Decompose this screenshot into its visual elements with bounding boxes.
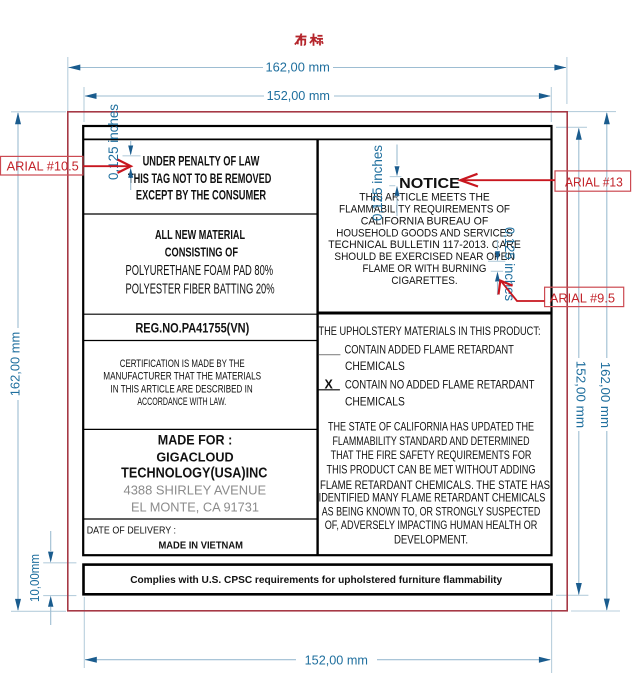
- svg-text:152,00 mm: 152,00 mm: [573, 361, 588, 428]
- svg-text:THE UPHOLSTERY MATERIALS IN TH: THE UPHOLSTERY MATERIALS IN THIS PRODUCT…: [319, 324, 541, 338]
- svg-text:DEVELOPMENT.: DEVELOPMENT.: [394, 532, 468, 546]
- svg-text:CERTIFICATION IS MADE BY THE: CERTIFICATION IS MADE BY THE: [120, 358, 245, 370]
- svg-text:0,125 inches: 0,125 inches: [369, 145, 385, 221]
- svg-text:ARIAL #13: ARIAL #13: [565, 174, 623, 189]
- svg-text:FLAMMABILITY REQUIREMENTS OF: FLAMMABILITY REQUIREMENTS OF: [339, 203, 510, 215]
- svg-text:EL MONTE, CA 91731: EL MONTE, CA 91731: [131, 499, 259, 514]
- svg-text:CONTAIN NO ADDED FLAME RETARDA: CONTAIN NO ADDED FLAME RETARDANT: [345, 378, 535, 392]
- svg-text:ARIAL #10.5: ARIAL #10.5: [7, 159, 79, 174]
- svg-text:ACCORDANCE WITH LAW.: ACCORDANCE WITH LAW.: [137, 396, 226, 408]
- svg-text:Complies with U.S. CPSC requir: Complies with U.S. CPSC requirements for…: [130, 574, 502, 586]
- svg-text:152,00 mm: 152,00 mm: [305, 653, 368, 668]
- svg-text:THIS TAG NOT TO BE REMOVED: THIS TAG NOT TO BE REMOVED: [128, 170, 271, 186]
- svg-text:162,00 mm: 162,00 mm: [265, 60, 330, 75]
- svg-text:ALL NEW MATERIAL: ALL NEW MATERIAL: [155, 228, 245, 242]
- svg-text:EXCEPT BY THE CONSUMER: EXCEPT BY THE CONSUMER: [136, 186, 266, 202]
- svg-text:MADE FOR :: MADE FOR :: [158, 432, 233, 448]
- svg-text:4388 SHIRLEY AVENUE: 4388 SHIRLEY AVENUE: [124, 482, 267, 497]
- svg-text:IDENTIFIED MANY FLAME RETARDAN: IDENTIFIED MANY FLAME RETARDANT CHEMICAL…: [319, 490, 546, 504]
- svg-text:POLYESTER FIBER BATTING 20%: POLYESTER FIBER BATTING 20%: [126, 282, 275, 298]
- svg-text:FLAMMABILITY STANDARD AND DETE: FLAMMABILITY STANDARD AND DETERMINED: [333, 434, 530, 448]
- svg-text:0,125 inches: 0,125 inches: [105, 104, 121, 180]
- svg-text:CHEMICALS: CHEMICALS: [345, 359, 405, 373]
- svg-text:0,125 inches: 0,125 inches: [502, 227, 518, 301]
- svg-text:MADE IN VIETNAM: MADE IN VIETNAM: [158, 539, 243, 551]
- svg-text:THE STATE OF CALIFORNIA HAS UP: THE STATE OF CALIFORNIA HAS UPDATED THE: [328, 420, 534, 434]
- svg-text:FLAME OR WITH BURNING: FLAME OR WITH BURNING: [363, 263, 487, 275]
- svg-text:162,00 mm: 162,00 mm: [598, 362, 613, 428]
- svg-text:CONSISTING OF: CONSISTING OF: [165, 245, 238, 259]
- svg-text:POLYURETHANE FOAM PAD 80%: POLYURETHANE FOAM PAD 80%: [126, 263, 274, 279]
- svg-text:SHOULD BE EXERCISED NEAR OPEN: SHOULD BE EXERCISED NEAR OPEN: [334, 251, 514, 263]
- svg-text:REG.NO.PA41755(VN): REG.NO.PA41755(VN): [135, 321, 249, 336]
- svg-text:IN THIS ARTICLE ARE DESCRIBED: IN THIS ARTICLE ARE DESCRIBED IN: [111, 383, 253, 395]
- svg-text:ARIAL #9.5: ARIAL #9.5: [550, 290, 615, 305]
- svg-text:MANUFACTURER THAT THE MATERIAL: MANUFACTURER THAT THE MATERIALS: [103, 371, 261, 383]
- svg-text:GIGACLOUD: GIGACLOUD: [156, 450, 233, 465]
- svg-text:NOTICE: NOTICE: [399, 175, 460, 192]
- svg-text:152,00 mm: 152,00 mm: [267, 88, 330, 103]
- svg-text:DATE OF DELIVERY :: DATE OF DELIVERY :: [87, 525, 176, 537]
- svg-text:CONTAIN ADDED FLAME RETARDANT: CONTAIN ADDED FLAME RETARDANT: [345, 343, 514, 357]
- svg-text:10,00mm: 10,00mm: [27, 554, 42, 602]
- svg-text:THIS PRODUCT CAN BE MET WITHOU: THIS PRODUCT CAN BE MET WITHOUT ADDING: [327, 462, 536, 476]
- svg-text:TECHNOLOGY(USA)INC: TECHNOLOGY(USA)INC: [121, 466, 268, 482]
- svg-text:HOUSEHOLD GOODS AND SERVICES: HOUSEHOLD GOODS AND SERVICES: [336, 227, 513, 239]
- svg-text:THAT THE FIRE SAFETY REQUIREME: THAT THE FIRE SAFETY REQUIREMENTS FOR: [331, 448, 532, 462]
- svg-text:OF, ADVERSELY IMPACTING HUMAN: OF, ADVERSELY IMPACTING HUMAN HEALTH OR: [325, 518, 538, 532]
- svg-text:CHEMICALS: CHEMICALS: [345, 395, 405, 409]
- svg-text:UNDER PENALTY OF LAW: UNDER PENALTY OF LAW: [143, 153, 260, 169]
- svg-text:TECHNICAL BULLETIN 117-2013. C: TECHNICAL BULLETIN 117-2013. CARE: [328, 239, 521, 251]
- svg-text:AS BEING KNOWN TO, OR STRONGLY: AS BEING KNOWN TO, OR STRONGLY SUSPECTED: [322, 504, 541, 518]
- svg-text:CIGARETTES.: CIGARETTES.: [391, 275, 457, 287]
- svg-text:162,00 mm: 162,00 mm: [8, 332, 23, 397]
